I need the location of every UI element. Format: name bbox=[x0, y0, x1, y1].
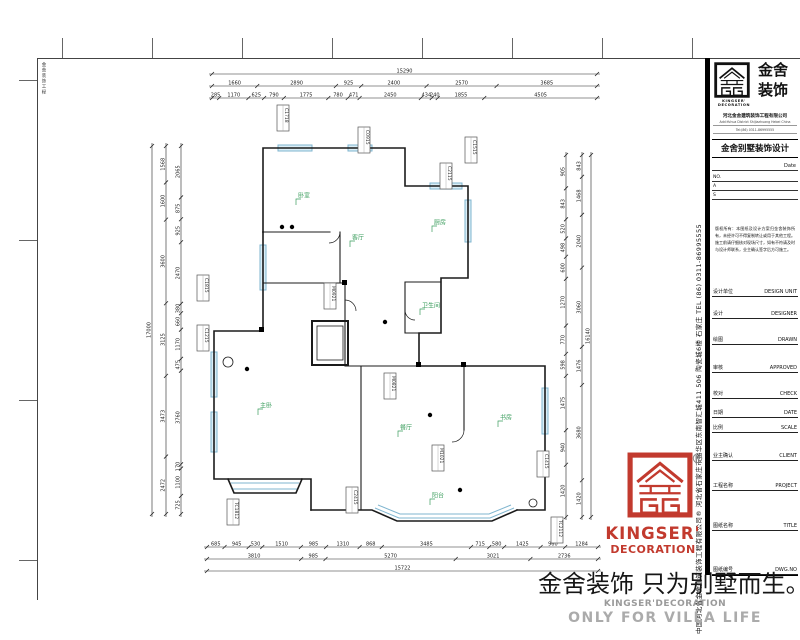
svg-text:985: 985 bbox=[309, 554, 319, 560]
svg-text:843: 843 bbox=[577, 161, 583, 171]
svg-text:945: 945 bbox=[232, 542, 242, 548]
svg-text:2065: 2065 bbox=[176, 165, 182, 178]
svg-text:16140: 16140 bbox=[586, 328, 592, 344]
svg-text:780: 780 bbox=[333, 93, 343, 99]
svg-text:C0915: C0915 bbox=[364, 130, 370, 145]
svg-text:阳台: 阳台 bbox=[432, 492, 444, 500]
svg-text:3473: 3473 bbox=[161, 410, 167, 423]
svg-text:2400: 2400 bbox=[388, 81, 401, 87]
svg-text:940: 940 bbox=[561, 443, 567, 453]
svg-text:925: 925 bbox=[176, 226, 182, 236]
structural-columns bbox=[259, 280, 466, 367]
svg-text:1476: 1476 bbox=[577, 360, 583, 373]
svg-text:1170: 1170 bbox=[227, 93, 240, 99]
svg-text:843: 843 bbox=[561, 199, 567, 209]
svg-text:2450: 2450 bbox=[384, 93, 397, 99]
svg-text:3685: 3685 bbox=[540, 81, 553, 87]
svg-text:3680: 3680 bbox=[577, 426, 583, 439]
svg-text:285: 285 bbox=[211, 93, 221, 99]
svg-text:3760: 3760 bbox=[176, 411, 182, 424]
svg-text:868: 868 bbox=[366, 542, 376, 548]
svg-text:C1815: C1815 bbox=[203, 278, 209, 293]
svg-text:1310: 1310 bbox=[336, 542, 349, 548]
svg-text:1775: 1775 bbox=[300, 93, 313, 99]
svg-text:1420: 1420 bbox=[561, 485, 567, 498]
svg-text:1420: 1420 bbox=[577, 492, 583, 505]
svg-text:2472: 2472 bbox=[161, 479, 167, 492]
svg-text:1425: 1425 bbox=[516, 542, 529, 548]
svg-text:1660: 1660 bbox=[228, 81, 241, 87]
svg-text:3810: 3810 bbox=[248, 554, 261, 560]
svg-text:2570: 2570 bbox=[455, 81, 468, 87]
stamp-line1: KINGSER' bbox=[603, 524, 703, 543]
svg-text:TC1812: TC1812 bbox=[233, 501, 239, 519]
svg-text:客厅: 客厅 bbox=[352, 234, 364, 242]
shaft-inner bbox=[317, 326, 343, 360]
svg-text:3021: 3021 bbox=[487, 554, 500, 560]
svg-text:660: 660 bbox=[176, 317, 182, 327]
svg-text:15290: 15290 bbox=[397, 69, 413, 75]
svg-text:C1718: C1718 bbox=[283, 108, 289, 123]
svg-text:580: 580 bbox=[492, 542, 502, 548]
svg-text:1510: 1510 bbox=[275, 542, 288, 548]
svg-text:600: 600 bbox=[561, 263, 567, 273]
svg-text:598: 598 bbox=[561, 360, 567, 370]
svg-text:M1021: M1021 bbox=[438, 448, 444, 463]
dimension-chains: 1529016602890925240025703685285117062579… bbox=[147, 69, 602, 574]
window-door-tags: C1718C0915C2115C1515C1815C1215M0921M0821… bbox=[197, 105, 563, 543]
svg-text:M0821: M0821 bbox=[390, 376, 396, 391]
svg-text:1600: 1600 bbox=[161, 195, 167, 208]
svg-text:725: 725 bbox=[176, 500, 182, 510]
svg-text:卧室: 卧室 bbox=[298, 192, 310, 200]
svg-text:1475: 1475 bbox=[561, 397, 567, 410]
svg-text:1468: 1468 bbox=[577, 189, 583, 202]
svg-text:2470: 2470 bbox=[176, 267, 182, 280]
svg-text:925: 925 bbox=[344, 81, 354, 87]
door-swings bbox=[329, 232, 464, 442]
svg-text:厨房: 厨房 bbox=[434, 219, 446, 227]
svg-text:C1415: C1415 bbox=[543, 454, 549, 469]
svg-text:1568: 1568 bbox=[161, 158, 167, 171]
svg-text:2736: 2736 bbox=[558, 554, 571, 560]
svg-text:3060: 3060 bbox=[577, 301, 583, 314]
svg-text:2890: 2890 bbox=[290, 81, 303, 87]
svg-text:M0921: M0921 bbox=[330, 286, 336, 301]
svg-text:380: 380 bbox=[176, 304, 182, 314]
floor-plan-walls bbox=[214, 148, 545, 521]
svg-text:1284: 1284 bbox=[575, 542, 588, 548]
svg-text:625: 625 bbox=[251, 93, 261, 99]
svg-text:685: 685 bbox=[211, 542, 221, 548]
svg-text:4505: 4505 bbox=[534, 93, 547, 99]
svg-text:3485: 3485 bbox=[420, 542, 433, 548]
svg-text:3600: 3600 bbox=[161, 255, 167, 268]
svg-text:书房: 书房 bbox=[500, 414, 512, 422]
svg-text:C1515: C1515 bbox=[471, 140, 477, 155]
svg-text:1855: 1855 bbox=[455, 93, 468, 99]
svg-text:1270: 1270 bbox=[561, 296, 567, 309]
svg-text:170: 170 bbox=[176, 462, 182, 472]
svg-text:17000: 17000 bbox=[147, 322, 153, 338]
svg-text:卫生间: 卫生间 bbox=[422, 302, 440, 310]
svg-text:1100: 1100 bbox=[176, 476, 182, 489]
svg-text:240: 240 bbox=[430, 93, 440, 99]
svg-text:498: 498 bbox=[561, 243, 567, 253]
svg-text:985: 985 bbox=[309, 542, 319, 548]
svg-text:TC2112: TC2112 bbox=[557, 519, 563, 537]
stamp-line2: DECORATION bbox=[603, 543, 703, 556]
svg-text:5270: 5270 bbox=[384, 554, 397, 560]
registered-mark: ® bbox=[691, 452, 704, 467]
svg-text:1170: 1170 bbox=[176, 338, 182, 351]
room-labels: 卧室客厅厨房卫生间主卧餐厅书房阳台 bbox=[258, 192, 512, 506]
kingser-stamp-icon bbox=[627, 452, 693, 518]
svg-text:520: 520 bbox=[561, 224, 567, 234]
svg-text:715: 715 bbox=[475, 542, 485, 548]
svg-text:15722: 15722 bbox=[395, 566, 411, 572]
svg-text:C1215: C1215 bbox=[203, 328, 209, 343]
svg-text:875: 875 bbox=[176, 204, 182, 214]
svg-text:C2115: C2115 bbox=[446, 166, 452, 181]
svg-text:2040: 2040 bbox=[577, 235, 583, 248]
svg-text:3125: 3125 bbox=[161, 333, 167, 346]
svg-text:790: 790 bbox=[269, 93, 279, 99]
svg-text:471: 471 bbox=[349, 93, 359, 99]
svg-text:905: 905 bbox=[561, 167, 567, 177]
svg-text:主卧: 主卧 bbox=[260, 402, 272, 410]
kingser-red-stamp: ® KINGSER' DECORATION bbox=[603, 452, 703, 556]
svg-text:770: 770 bbox=[561, 335, 567, 345]
svg-text:530: 530 bbox=[251, 542, 261, 548]
brand-slogan: 金舍装饰 只为别墅而生。 bbox=[538, 564, 800, 599]
svg-text:餐厅: 餐厅 bbox=[400, 424, 412, 432]
svg-text:475: 475 bbox=[176, 360, 182, 370]
svg-text:C2415: C2415 bbox=[352, 490, 358, 505]
